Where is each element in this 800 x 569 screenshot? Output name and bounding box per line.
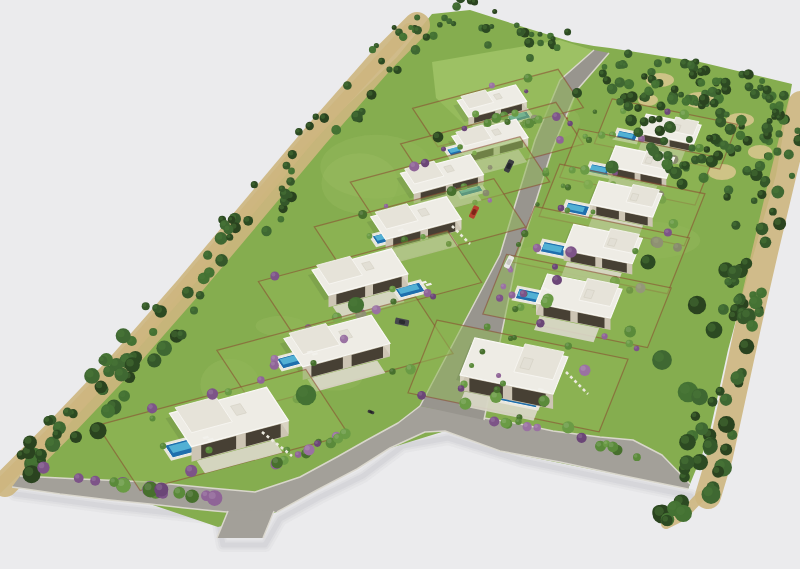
garden-bush xyxy=(484,324,491,331)
tree-highlight xyxy=(387,67,390,70)
tree-highlight xyxy=(724,194,728,198)
tree-highlight xyxy=(453,3,457,7)
tree-highlight xyxy=(725,279,729,283)
bush-highlight xyxy=(421,235,423,237)
site-plan-svg xyxy=(0,0,800,569)
tree-highlight xyxy=(25,437,32,444)
garden-bush xyxy=(535,202,539,206)
tree-highlight xyxy=(525,39,530,44)
tree-highlight xyxy=(645,88,649,92)
bush-highlight xyxy=(442,147,444,149)
tree-highlight xyxy=(548,33,551,36)
tree-highlight xyxy=(625,50,629,54)
bush-highlight xyxy=(495,387,498,390)
tree-highlight xyxy=(617,99,621,103)
tree-highlight xyxy=(490,24,493,27)
tree-highlight xyxy=(704,147,707,150)
tree-highlight xyxy=(682,162,686,166)
tree-highlight xyxy=(600,70,604,74)
tree-highlight xyxy=(116,369,123,376)
tree-highlight xyxy=(409,26,411,28)
garden-bush xyxy=(459,398,471,410)
bush-highlight xyxy=(522,231,525,234)
tree-highlight xyxy=(720,264,728,272)
tree-highlight xyxy=(149,355,156,362)
tree-highlight xyxy=(761,238,767,244)
tree-highlight xyxy=(664,152,669,157)
tree-highlight xyxy=(719,305,724,310)
tree-highlight xyxy=(721,395,727,401)
tree-highlight xyxy=(229,217,233,221)
bush-highlight xyxy=(561,184,563,186)
bush-highlight xyxy=(501,284,504,287)
bougainvillea-bush xyxy=(74,473,84,483)
tree-highlight xyxy=(717,388,721,392)
tree-highlight xyxy=(64,408,69,413)
garden-bush xyxy=(389,286,395,292)
tree-highlight xyxy=(773,187,779,193)
bush-highlight xyxy=(271,273,275,277)
tree-highlight xyxy=(692,156,696,160)
bush-highlight xyxy=(540,396,545,401)
tree-highlight xyxy=(755,309,760,314)
tree-highlight xyxy=(713,467,719,473)
tree-highlight xyxy=(773,109,777,113)
tree-highlight xyxy=(700,174,705,179)
tree-highlight xyxy=(227,235,230,238)
bush-highlight xyxy=(591,210,593,212)
bougainvillea-bush xyxy=(303,444,314,455)
bush-highlight xyxy=(206,447,209,450)
bush-highlight xyxy=(384,204,386,206)
garden-bush xyxy=(508,336,513,341)
tree-highlight xyxy=(725,186,730,191)
tree-highlight xyxy=(320,114,325,119)
bush-highlight xyxy=(537,320,541,324)
garden-bush xyxy=(580,165,590,175)
bush-highlight xyxy=(490,417,495,422)
tree-highlight xyxy=(757,289,762,294)
bush-highlight xyxy=(587,137,590,140)
tree-highlight xyxy=(704,441,712,449)
bush-highlight xyxy=(485,324,488,327)
tree-highlight xyxy=(197,292,201,296)
bush-highlight xyxy=(502,419,507,424)
tree-highlight xyxy=(735,146,739,150)
tree-highlight xyxy=(352,112,358,118)
bush-highlight xyxy=(462,126,465,129)
bush-highlight xyxy=(565,208,568,211)
tree-highlight xyxy=(628,92,634,98)
tree-highlight xyxy=(244,217,249,222)
bush-highlight xyxy=(410,162,415,167)
tree-highlight xyxy=(627,116,633,122)
tree-highlight xyxy=(102,405,109,412)
tree-highlight xyxy=(313,114,316,117)
bush-highlight xyxy=(534,245,538,249)
tree-highlight xyxy=(120,391,126,397)
tree-highlight xyxy=(370,47,374,51)
bush-highlight xyxy=(516,419,519,422)
bush-highlight xyxy=(145,483,152,490)
tree-highlight xyxy=(283,163,287,167)
bush-highlight xyxy=(517,242,519,244)
bush-highlight xyxy=(525,90,527,92)
tree-highlight xyxy=(750,297,757,304)
garden-bush xyxy=(593,109,598,114)
garden-bush xyxy=(447,186,457,196)
bush-highlight xyxy=(402,237,405,240)
tree-highlight xyxy=(414,27,418,31)
tree-highlight xyxy=(770,209,774,213)
bush-highlight xyxy=(513,307,516,310)
tree-highlight xyxy=(687,137,690,140)
tree-highlight xyxy=(663,160,669,166)
tree-highlight xyxy=(225,226,230,231)
tree-highlight xyxy=(153,305,157,309)
garden-bush xyxy=(185,489,199,503)
bush-highlight xyxy=(161,444,164,447)
tree-highlight xyxy=(289,168,292,171)
bush-highlight xyxy=(681,111,685,115)
tree-highlight xyxy=(655,60,659,64)
garden-bush xyxy=(225,388,232,395)
tree-highlight xyxy=(756,162,761,167)
tree-highlight xyxy=(683,98,687,102)
tree-highlight xyxy=(183,288,189,294)
tree-highlight xyxy=(517,29,521,33)
bush-highlight xyxy=(544,168,547,171)
garden-bush xyxy=(543,168,549,174)
tree-highlight xyxy=(671,168,677,174)
bush-highlight xyxy=(518,305,521,308)
bush-highlight xyxy=(633,249,636,252)
tree-highlight xyxy=(604,77,608,81)
bush-highlight xyxy=(536,203,538,205)
bush-highlight xyxy=(448,187,452,191)
tree-highlight xyxy=(296,129,300,133)
tree-highlight xyxy=(714,152,719,157)
tree-highlight xyxy=(71,432,77,438)
tree-highlight xyxy=(221,221,226,226)
bougainvillea-bush xyxy=(556,136,564,144)
tree-highlight xyxy=(657,116,660,119)
bush-highlight xyxy=(39,463,45,469)
bougainvillea-bush xyxy=(257,376,265,384)
garden-bush xyxy=(565,208,571,214)
tree-highlight xyxy=(344,82,348,86)
garden-bush xyxy=(500,418,510,428)
tree-highlight xyxy=(438,22,441,25)
tree-highlight xyxy=(642,256,650,264)
tree-highlight xyxy=(332,126,337,131)
tree-highlight xyxy=(776,102,780,106)
tree-highlight xyxy=(745,83,749,87)
tree-highlight xyxy=(635,105,639,109)
tree-highlight xyxy=(752,198,755,201)
tree-highlight xyxy=(688,62,692,66)
tree-highlight xyxy=(751,90,756,95)
bush-highlight xyxy=(570,167,573,170)
bougainvillea-bush xyxy=(496,295,503,302)
bush-highlight xyxy=(505,119,508,122)
bush-highlight xyxy=(470,364,472,366)
tree-highlight xyxy=(666,58,669,61)
tree-highlight xyxy=(46,438,54,446)
tree-highlight xyxy=(744,70,749,75)
garden-bush xyxy=(538,395,549,406)
tree-highlight xyxy=(279,186,282,189)
tree-highlight xyxy=(625,80,630,85)
tree-highlight xyxy=(760,79,763,82)
tree-highlight xyxy=(692,412,697,417)
garden-bush xyxy=(516,242,521,247)
tree-highlight xyxy=(538,32,541,35)
bush-highlight xyxy=(627,340,630,343)
tree-highlight xyxy=(217,255,223,261)
bush-highlight xyxy=(604,441,607,444)
tree-highlight xyxy=(767,119,770,122)
bougainvillea-bush xyxy=(270,361,279,370)
bush-highlight xyxy=(634,346,637,349)
tree-highlight xyxy=(621,94,626,99)
bush-highlight xyxy=(490,83,493,86)
tree-highlight xyxy=(36,450,42,456)
garden-bush xyxy=(457,144,463,150)
tree-highlight xyxy=(680,384,690,394)
bush-highlight xyxy=(593,110,595,112)
tree-highlight xyxy=(430,32,434,36)
garden-bush xyxy=(535,116,543,124)
bush-highlight xyxy=(311,361,314,364)
bush-highlight xyxy=(150,416,153,419)
tree-highlight xyxy=(689,145,693,149)
tree-highlight xyxy=(711,100,715,104)
bush-highlight xyxy=(461,381,464,384)
tree-highlight xyxy=(412,46,417,51)
tree-highlight xyxy=(648,69,652,73)
bush-highlight xyxy=(557,137,560,140)
tree-highlight xyxy=(442,15,445,18)
bush-highlight xyxy=(492,392,497,397)
tree-highlight xyxy=(741,340,749,348)
tree-highlight xyxy=(608,85,613,90)
garden-bush xyxy=(150,416,156,422)
bush-highlight xyxy=(367,234,370,237)
tree-highlight xyxy=(565,29,568,32)
tree-highlight xyxy=(745,167,748,170)
garden-bush xyxy=(389,368,395,374)
tree-highlight xyxy=(737,132,742,137)
garden-bush xyxy=(480,349,486,355)
tree-highlight xyxy=(703,487,712,496)
tree-highlight xyxy=(104,367,110,373)
bush-highlight xyxy=(485,120,489,124)
tree-highlight xyxy=(262,227,267,232)
bush-highlight xyxy=(596,442,601,447)
garden-bush xyxy=(492,113,502,123)
bush-highlight xyxy=(208,390,213,395)
bush-highlight xyxy=(578,434,583,439)
bougainvillea-bush xyxy=(552,275,562,285)
bush-highlight xyxy=(296,452,299,455)
bush-highlight xyxy=(581,366,586,371)
tree-highlight xyxy=(24,467,33,476)
tree-highlight xyxy=(739,72,743,76)
garden-bush xyxy=(669,219,679,229)
bush-highlight xyxy=(553,264,556,267)
tree-highlight xyxy=(379,58,382,61)
tree-highlight xyxy=(415,15,418,18)
tree-highlight xyxy=(763,123,768,128)
bush-highlight xyxy=(553,276,557,280)
tree-highlight xyxy=(730,312,735,317)
bush-highlight xyxy=(75,474,79,478)
bougainvillea-bush xyxy=(207,490,223,506)
bush-highlight xyxy=(512,110,515,113)
tree-highlight xyxy=(721,445,727,451)
bush-highlight xyxy=(583,134,585,136)
bougainvillea-bush xyxy=(634,346,640,352)
tree-highlight xyxy=(758,191,763,196)
bougainvillea-bush xyxy=(533,424,541,432)
tree-highlight xyxy=(298,387,308,397)
tree-highlight xyxy=(726,125,732,131)
bougainvillea-bush xyxy=(577,433,587,443)
tree-highlight xyxy=(720,418,729,427)
tree-highlight xyxy=(716,109,721,114)
bush-highlight xyxy=(315,441,318,444)
site-plan-render xyxy=(0,0,800,569)
bush-highlight xyxy=(341,336,345,340)
tree-highlight xyxy=(278,217,281,220)
bush-highlight xyxy=(422,160,426,164)
tree-highlight xyxy=(642,74,645,77)
tree-highlight xyxy=(709,398,714,403)
tree-highlight xyxy=(766,95,770,99)
bush-highlight xyxy=(305,445,310,450)
bush-highlight xyxy=(273,458,278,463)
bush-highlight xyxy=(525,75,529,79)
tree-highlight xyxy=(722,79,727,84)
garden-bush xyxy=(696,144,704,152)
tree-highlight xyxy=(216,233,222,239)
bush-highlight xyxy=(602,334,605,337)
bush-highlight xyxy=(665,109,668,112)
tree-highlight xyxy=(655,154,659,158)
bush-highlight xyxy=(553,113,557,117)
tree-highlight xyxy=(757,224,763,230)
tree-highlight xyxy=(700,95,705,100)
tree-highlight xyxy=(396,29,400,33)
tree-highlight xyxy=(126,359,134,367)
bush-highlight xyxy=(202,491,207,496)
bush-highlight xyxy=(334,434,339,439)
tree-highlight xyxy=(251,182,255,186)
bougainvillea-bush xyxy=(340,335,348,343)
bougainvillea-bush xyxy=(462,126,468,132)
bush-highlight xyxy=(497,374,499,376)
bush-highlight xyxy=(425,290,428,293)
tree-highlight xyxy=(681,457,688,464)
bush-highlight xyxy=(609,442,614,447)
tree-highlight xyxy=(658,103,662,107)
tree-highlight xyxy=(693,59,696,62)
bush-highlight xyxy=(459,386,462,389)
tree-highlight xyxy=(99,357,103,361)
tree-highlight xyxy=(493,10,495,12)
bougainvillea-bush xyxy=(430,293,436,299)
bougainvillea-bush xyxy=(533,244,541,252)
tree-highlight xyxy=(368,91,373,96)
tree-highlight xyxy=(713,78,717,82)
bush-highlight xyxy=(359,211,363,215)
tree-highlight xyxy=(774,219,780,225)
tree-highlight xyxy=(761,177,766,182)
tree-highlight xyxy=(709,88,714,93)
tree-highlight xyxy=(158,342,166,350)
bush-highlight xyxy=(391,299,394,302)
tree-highlight xyxy=(669,502,677,510)
tree-highlight xyxy=(654,507,663,516)
tree-highlight xyxy=(641,118,646,123)
bush-highlight xyxy=(92,477,96,481)
tree-highlight xyxy=(616,78,621,83)
tree-highlight xyxy=(764,86,768,90)
tree-highlight xyxy=(770,104,774,108)
tree-highlight xyxy=(750,292,754,296)
bush-highlight xyxy=(327,439,332,444)
bougainvillea-bush xyxy=(441,147,446,152)
bush-highlight xyxy=(497,295,500,298)
tree-highlight xyxy=(707,323,715,331)
tree-highlight xyxy=(654,352,664,362)
garden-bush xyxy=(484,119,492,127)
tree-highlight xyxy=(647,143,652,148)
tree-highlight xyxy=(649,76,653,80)
tree-highlight xyxy=(697,424,704,431)
tree-highlight xyxy=(573,89,578,94)
bush-highlight xyxy=(542,298,547,303)
tree-highlight xyxy=(707,136,710,139)
bush-highlight xyxy=(665,229,669,233)
tree-highlight xyxy=(483,25,488,30)
tree-highlight xyxy=(721,141,726,146)
bougainvillea-bush xyxy=(154,483,168,497)
bush-highlight xyxy=(670,220,674,224)
tree-highlight xyxy=(693,390,701,398)
garden-bush xyxy=(205,446,212,453)
bush-highlight xyxy=(509,336,511,338)
tree-highlight xyxy=(551,37,553,39)
tree-highlight xyxy=(776,131,780,135)
garden-bush xyxy=(525,119,535,129)
bougainvillea-bush xyxy=(207,388,218,399)
tree-highlight xyxy=(178,331,183,336)
bush-highlight xyxy=(634,454,638,458)
tree-highlight xyxy=(679,92,682,95)
bush-highlight xyxy=(285,447,288,450)
bush-highlight xyxy=(559,205,562,208)
tree-highlight xyxy=(694,100,697,103)
tree-highlight xyxy=(732,222,736,226)
tree-highlight xyxy=(681,436,689,444)
tree-highlight xyxy=(747,321,753,327)
tree-highlight xyxy=(199,274,205,280)
tree-highlight xyxy=(400,34,404,38)
tree-highlight xyxy=(729,267,736,274)
bush-highlight xyxy=(156,484,162,490)
